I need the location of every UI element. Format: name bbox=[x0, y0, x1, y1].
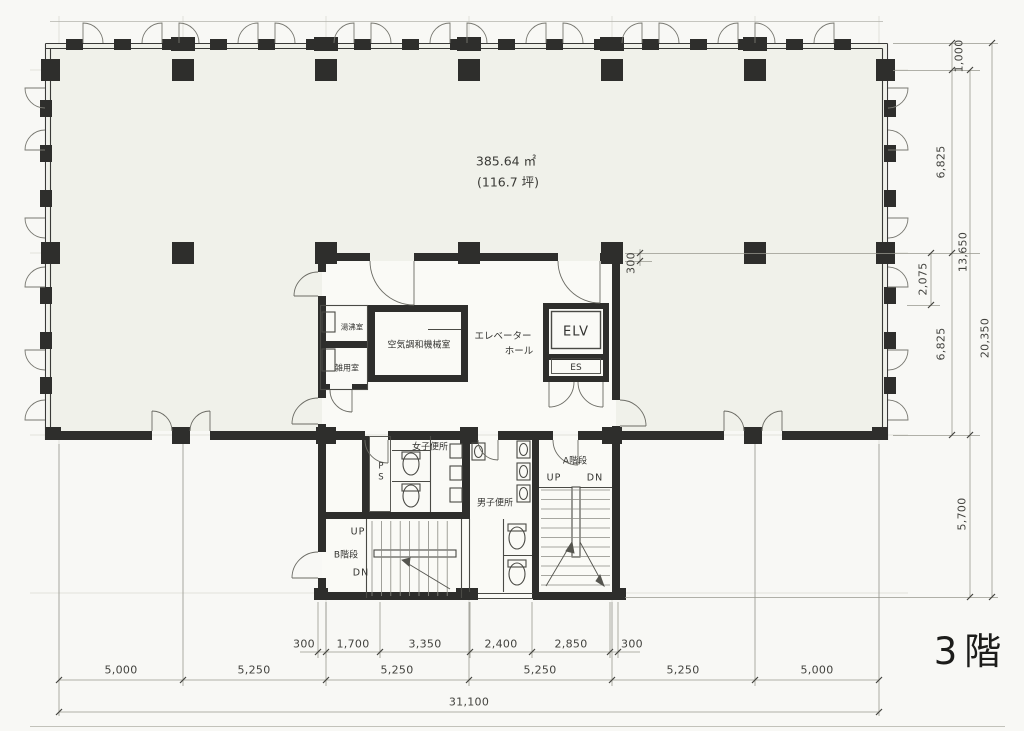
dim-wall-offset: 300 bbox=[625, 252, 638, 274]
mullion-block bbox=[690, 39, 707, 50]
window-arc bbox=[238, 23, 258, 43]
dim-bay-6: 5,000 bbox=[801, 664, 834, 677]
dim-hall-depth: 2,075 bbox=[917, 263, 930, 296]
dim-total-width: 31,100 bbox=[449, 696, 489, 709]
mullion-block bbox=[884, 190, 896, 207]
dim-bay-upper: 6,825 bbox=[935, 146, 948, 179]
window-arc bbox=[888, 350, 908, 370]
mullion-block bbox=[546, 39, 563, 50]
mullion-block bbox=[354, 39, 371, 50]
kitchenette-label: 湯沸室 bbox=[341, 322, 364, 333]
window-arc bbox=[622, 23, 642, 43]
mullion-block bbox=[66, 39, 83, 50]
dim-core-width-6: 300 bbox=[621, 638, 643, 651]
mullion-column bbox=[876, 59, 895, 81]
mullion-column bbox=[457, 37, 481, 51]
window-arc bbox=[563, 23, 583, 43]
dim-core-width-5: 2,850 bbox=[555, 638, 588, 651]
dim-core-width-2: 1,700 bbox=[337, 638, 370, 651]
window-arc bbox=[526, 23, 546, 43]
dim-core-width-3: 3,350 bbox=[409, 638, 442, 651]
mullion-block bbox=[884, 332, 896, 349]
window-arc bbox=[371, 23, 391, 43]
dim-bay-2: 5,250 bbox=[238, 664, 271, 677]
stair-a-up-label: UP bbox=[547, 473, 562, 484]
dim-core-width-4: 2,400 bbox=[485, 638, 518, 651]
dim-bay-lower: 6,825 bbox=[935, 328, 948, 361]
window-arc bbox=[814, 23, 834, 43]
womens-toilet-label: 女子便所 bbox=[412, 440, 448, 453]
mullion-block bbox=[40, 377, 52, 394]
mullion-block bbox=[786, 39, 803, 50]
dim-offset-top: 1,000 bbox=[953, 40, 966, 73]
mullion-block bbox=[884, 100, 896, 117]
elevator-label: ELV bbox=[563, 325, 589, 340]
dim-bay-4: 5,250 bbox=[524, 664, 557, 677]
window-arc bbox=[25, 400, 45, 420]
stair-b-up-label: UP bbox=[351, 527, 366, 538]
mullion-block bbox=[210, 39, 227, 50]
mens-toilet-label: 男子便所 bbox=[477, 496, 513, 509]
mullion-block bbox=[114, 39, 131, 50]
floor-plan-drawing bbox=[0, 0, 1024, 731]
window-arc bbox=[888, 218, 908, 238]
mullion-block bbox=[498, 39, 515, 50]
area-m2-label: 385.64 ㎡ bbox=[476, 151, 536, 170]
machine-room-label: 空気調和機械室 bbox=[387, 338, 450, 351]
pipe-shaft-label: PS bbox=[376, 461, 386, 482]
mullion-column bbox=[876, 242, 895, 264]
utility-room-label: 雑用室 bbox=[335, 363, 359, 374]
dim-span-upper: 13,650 bbox=[957, 232, 970, 272]
window-arc bbox=[888, 267, 908, 287]
mullion-column bbox=[41, 59, 60, 81]
mullion-block bbox=[40, 145, 52, 162]
elevator-hall-label-line2: ホール bbox=[505, 343, 534, 357]
mullion-block bbox=[40, 100, 52, 117]
window-arc bbox=[142, 23, 162, 43]
dim-span-total: 20,350 bbox=[979, 318, 992, 358]
mullion-block bbox=[40, 190, 52, 207]
mullion-block bbox=[884, 287, 896, 304]
floor-plan-sheet: 385.64 ㎡ (116.7 坪) 空気調和機械室 湯沸室 雑用室 エレベータ… bbox=[0, 0, 1024, 731]
stair-b-dn-label: DN bbox=[353, 568, 369, 579]
dim-bay-1: 5,000 bbox=[105, 664, 138, 677]
dim-bay-5: 5,250 bbox=[667, 664, 700, 677]
mullion-column bbox=[600, 37, 624, 51]
mullion-block bbox=[642, 39, 659, 50]
window-arc bbox=[659, 23, 679, 43]
window-arc bbox=[430, 23, 450, 43]
mullion-block bbox=[40, 287, 52, 304]
stair-a-dn-label: DN bbox=[587, 473, 603, 484]
elevator-hall-label-line1: エレベーター bbox=[474, 328, 531, 342]
stair-b-label: B階段 bbox=[334, 548, 358, 561]
mullion-block bbox=[402, 39, 419, 50]
mullion-block bbox=[40, 332, 52, 349]
mullion-column bbox=[41, 242, 60, 264]
dim-core-depth: 5,700 bbox=[956, 498, 969, 531]
mullion-block bbox=[884, 145, 896, 162]
window-arc bbox=[25, 267, 45, 287]
mullion-block bbox=[834, 39, 851, 50]
stair-a-label: A階段 bbox=[563, 454, 587, 467]
window-arc bbox=[888, 400, 908, 420]
window-arc bbox=[83, 23, 103, 43]
window-arc bbox=[275, 23, 295, 43]
elevator-es-label: ES bbox=[570, 363, 581, 373]
area-tsubo-label: (116.7 坪) bbox=[477, 172, 539, 191]
window-arc bbox=[25, 218, 45, 238]
dim-core-width-1: 300 bbox=[293, 638, 315, 651]
mullion-column bbox=[171, 37, 195, 51]
floor-title-label: 3階 bbox=[934, 621, 1009, 675]
window-arc bbox=[718, 23, 738, 43]
window-arc bbox=[25, 350, 45, 370]
dim-bay-3: 5,250 bbox=[381, 664, 414, 677]
mullion-block bbox=[258, 39, 275, 50]
mullion-block bbox=[884, 377, 896, 394]
